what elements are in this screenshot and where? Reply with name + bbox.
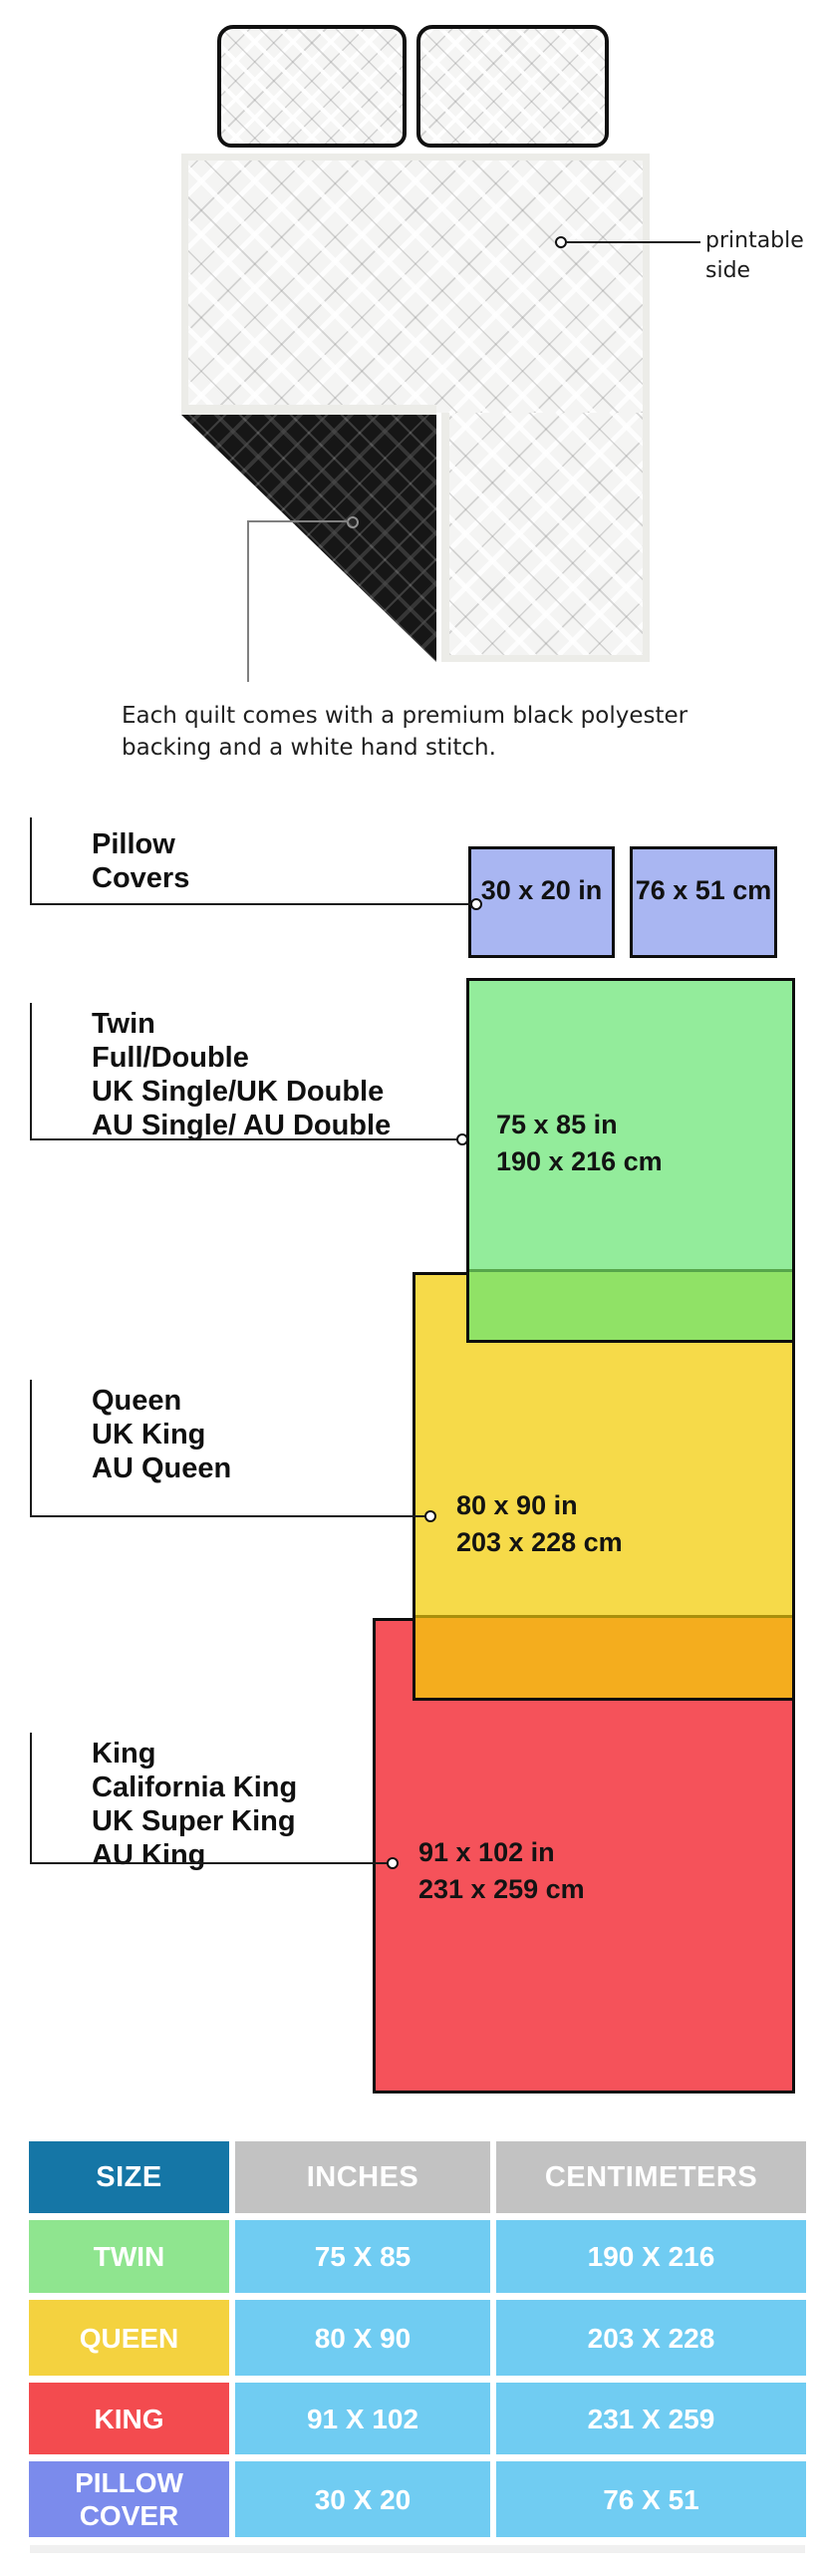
table-row-queen-name: QUEEN	[29, 2300, 229, 2376]
king-label-line4: AU King	[92, 1838, 297, 1872]
table-row-twin-inches: 75 X 85	[235, 2220, 490, 2293]
quilt-fold-crease	[181, 405, 436, 415]
twin-label-line4: AU Single/ AU Double	[92, 1109, 391, 1142]
quilt-caption: Each quilt comes with a premium black po…	[122, 700, 719, 764]
pillow-covers-connector-horizontal	[30, 903, 476, 905]
twin-label-line3: UK Single/UK Double	[92, 1075, 391, 1109]
twin-connector-vertical	[30, 1003, 32, 1140]
pillow-cover-rect-inches: 30 x 20 in	[468, 846, 615, 958]
table-header-inches: INCHES	[235, 2141, 490, 2213]
pillow-cover-rect-centimeters: 76 x 51 cm	[630, 846, 777, 958]
pillow-covers-label-line1: Pillow	[92, 827, 189, 861]
king-label-line1: King	[92, 1737, 297, 1771]
queen-size-centimeters: 203 x 228 cm	[456, 1524, 623, 1561]
pillow-illustration-left	[217, 25, 407, 148]
queen-marker-icon	[424, 1510, 436, 1522]
queen-connector-vertical	[30, 1380, 32, 1517]
table-header-centimeters: CENTIMETERS	[496, 2141, 806, 2213]
twin-queen-overlap-band	[469, 1269, 792, 1340]
twin-connector-horizontal	[30, 1138, 462, 1140]
size-table: SIZE INCHES CENTIMETERS TWIN 75 X 85 190…	[29, 2141, 806, 2537]
black-backing-marker-icon	[347, 516, 359, 528]
pillow-covers-label: Pillow Covers	[92, 827, 189, 895]
table-row-king-name: KING	[29, 2383, 229, 2454]
king-marker-icon	[387, 1857, 399, 1869]
queen-label-line3: AU Queen	[92, 1451, 231, 1485]
table-row-twin-name: TWIN	[29, 2220, 229, 2293]
king-connector-vertical	[30, 1733, 32, 1864]
king-connector-horizontal	[30, 1862, 393, 1864]
printable-side-label-line1: printable	[705, 226, 804, 256]
pillow-covers-label-line2: Covers	[92, 861, 189, 895]
queen-size-inches: 80 x 90 in	[456, 1487, 623, 1524]
king-size-inches: 91 x 102 in	[418, 1834, 585, 1871]
king-label: King California King UK Super King AU Ki…	[92, 1737, 297, 1872]
queen-label: Queen UK King AU Queen	[92, 1384, 231, 1485]
table-row-pillow-cover-inches: 30 X 20	[235, 2461, 490, 2537]
printable-side-marker-icon	[555, 236, 567, 248]
size-chart-image: printable side Each quilt comes with a p…	[0, 0, 825, 2576]
table-row-king-centimeters: 231 X 259	[496, 2383, 806, 2454]
twin-label-line2: Full/Double	[92, 1041, 391, 1075]
table-shadow	[30, 2545, 805, 2553]
queen-label-line1: Queen	[92, 1384, 231, 1418]
twin-size-annotation: 75 x 85 in 190 x 216 cm	[496, 1107, 663, 1180]
quilt-caption-line2: backing and a white hand stitch.	[122, 732, 719, 764]
twin-size-inches: 75 x 85 in	[496, 1107, 663, 1143]
table-header-size: SIZE	[29, 2141, 229, 2213]
twin-label: Twin Full/Double UK Single/UK Double AU …	[92, 1007, 391, 1142]
quilt-caption-line1: Each quilt comes with a premium black po…	[122, 700, 719, 732]
quilt-printable-side	[181, 154, 650, 413]
twin-marker-icon	[456, 1133, 468, 1145]
queen-connector-horizontal	[30, 1515, 430, 1517]
king-size-centimeters: 231 x 259 cm	[418, 1871, 585, 1908]
pillow-covers-connector-vertical	[30, 817, 32, 905]
table-row-twin-centimeters: 190 X 216	[496, 2220, 806, 2293]
queen-label-line2: UK King	[92, 1418, 231, 1451]
pillow-cover-size-inches: 30 x 20 in	[471, 849, 612, 906]
table-row-pillow-cover-name: PILLOW COVER	[29, 2461, 229, 2537]
printable-side-label-line2: side	[705, 256, 804, 286]
king-size-annotation: 91 x 102 in 231 x 259 cm	[418, 1834, 585, 1908]
quilt-lower-right	[441, 413, 650, 662]
pillow-cover-size-centimeters: 76 x 51 cm	[633, 849, 774, 906]
quilt-black-backing-fold	[181, 415, 436, 662]
black-backing-leader-line-vertical	[247, 520, 249, 682]
pillow-covers-marker-icon	[470, 898, 482, 910]
pillow-illustration-right	[416, 25, 609, 148]
queen-size-annotation: 80 x 90 in 203 x 228 cm	[456, 1487, 623, 1561]
twin-size-centimeters: 190 x 216 cm	[496, 1143, 663, 1180]
king-label-line3: UK Super King	[92, 1804, 297, 1838]
table-row-queen-inches: 80 X 90	[235, 2300, 490, 2376]
printable-side-leader-line	[567, 241, 700, 243]
twin-label-line1: Twin	[92, 1007, 391, 1041]
king-label-line2: California King	[92, 1771, 297, 1804]
table-row-queen-centimeters: 203 X 228	[496, 2300, 806, 2376]
table-row-king-inches: 91 X 102	[235, 2383, 490, 2454]
printable-side-label: printable side	[705, 226, 804, 286]
table-row-pillow-cover-centimeters: 76 X 51	[496, 2461, 806, 2537]
queen-king-overlap-band	[415, 1615, 792, 1698]
black-backing-leader-line-horizontal	[247, 520, 349, 522]
